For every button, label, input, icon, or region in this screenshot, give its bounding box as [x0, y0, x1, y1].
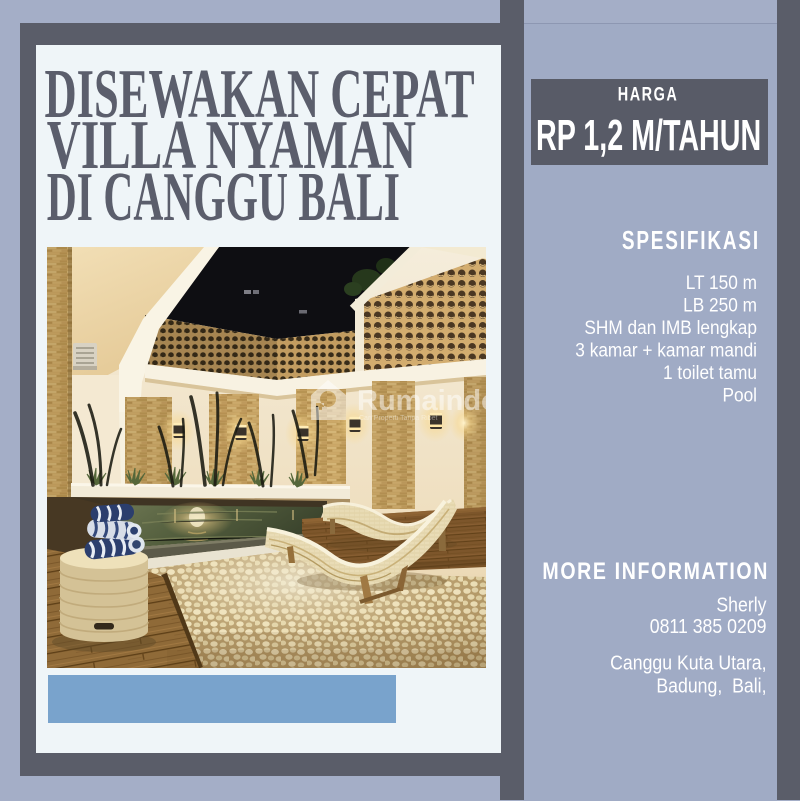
svg-text:Sherly: Sherly — [716, 595, 767, 617]
svg-text:HARGA: HARGA — [618, 84, 679, 105]
svg-text:MORE INFORMATION: MORE INFORMATION — [542, 557, 769, 584]
svg-text:SPESIFIKASI: SPESIFIKASI — [622, 225, 760, 255]
svg-text:Badung, Bali,: Badung, Bali, — [656, 676, 766, 698]
svg-text:Rumaindo: Rumaindo — [357, 385, 486, 417]
svg-text:RP 1,2 M/TAHUN: RP 1,2 M/TAHUN — [536, 110, 761, 160]
svg-text:DI CANGGU BALI: DI CANGGU BALI — [47, 159, 400, 236]
svg-text:LB 250 m: LB 250 m — [683, 293, 757, 315]
svg-text:LT 150 m: LT 150 m — [686, 271, 757, 293]
svg-text:Cari Properti Tanpa Ribet: Cari Properti Tanpa Ribet — [359, 415, 438, 422]
svg-text:1 toilet tamu: 1 toilet tamu — [663, 361, 757, 383]
svg-text:3 kamar + kamar mandi: 3 kamar + kamar mandi — [575, 338, 757, 360]
svg-text:Pool: Pool — [722, 383, 757, 405]
svg-text:SHM dan IMB lengkap: SHM dan IMB lengkap — [584, 316, 757, 338]
svg-text:Canggu Kuta Utara,: Canggu Kuta Utara, — [610, 653, 766, 675]
svg-text:0811 385 0209: 0811 385 0209 — [650, 616, 767, 638]
